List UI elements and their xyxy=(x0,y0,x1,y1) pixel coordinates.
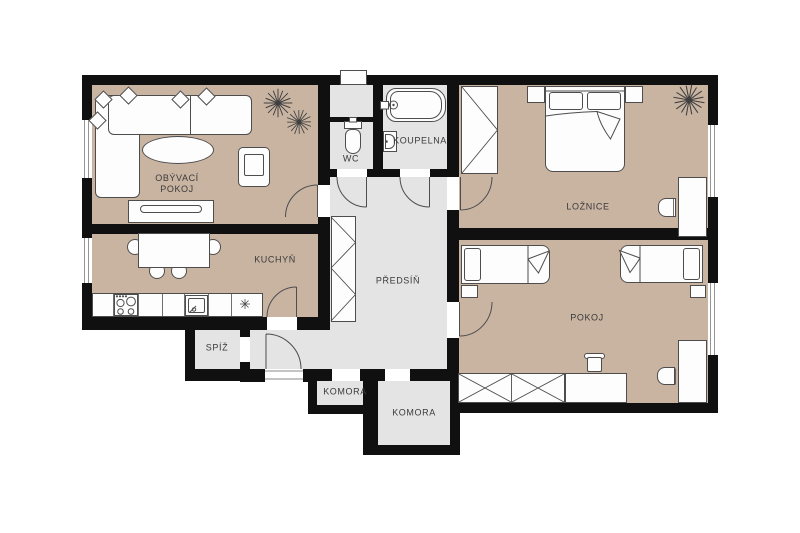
room-label-pantry: SPÍŽ xyxy=(206,343,228,354)
room-label-bathroom: KOUPELNA xyxy=(393,136,447,147)
toilet-tank xyxy=(344,121,362,129)
coffee-table xyxy=(142,136,214,164)
kitchen-sink-basin xyxy=(188,298,205,313)
door-opening-kids-room xyxy=(447,302,459,338)
room-label-storage-large: KOMORA xyxy=(392,408,436,419)
desk-chair-seat xyxy=(587,357,602,372)
room-label-wc: WC xyxy=(343,154,359,165)
door-opening-storage-small xyxy=(332,369,360,381)
door-opening-living-hall xyxy=(318,185,330,217)
bedroom-wardrobe xyxy=(461,86,498,174)
armchair-seat xyxy=(244,154,264,176)
desk xyxy=(678,177,707,237)
room-floor-shaft xyxy=(330,85,373,117)
window-kids-room xyxy=(708,283,718,355)
door-opening-pantry xyxy=(240,337,250,362)
dining-table xyxy=(138,233,210,268)
window-kitchen xyxy=(82,238,92,283)
pillow xyxy=(549,92,583,110)
bathtub-basin xyxy=(390,91,442,119)
stove xyxy=(114,294,138,316)
desk xyxy=(678,340,707,403)
nightstand xyxy=(461,285,478,298)
window-living-room xyxy=(82,120,92,178)
nightstand xyxy=(527,86,545,103)
door-opening-wc xyxy=(337,169,367,177)
door-opening-bedroom xyxy=(447,177,459,210)
nightstand xyxy=(690,285,706,298)
room-label-bedroom: LOŽNICE xyxy=(566,202,609,213)
room-label-kids-room: POKOJ xyxy=(570,313,604,324)
door-opening-bathroom xyxy=(400,169,430,177)
room-label-storage-small: KOMORA xyxy=(323,387,367,398)
room-floor-hall-entry xyxy=(250,330,334,369)
kids-wardrobe xyxy=(458,373,565,403)
pillow xyxy=(464,248,481,281)
door-opening-storage-large xyxy=(385,369,410,381)
toilet-bowl xyxy=(345,129,361,154)
window-bedroom xyxy=(708,125,718,197)
room-label-kitchen: KUCHYŇ xyxy=(254,255,296,266)
desk-chair xyxy=(657,367,675,385)
pillow xyxy=(587,92,621,110)
floor-plan: OBÝVACÍ POKOJ KUCHYŇ SPÍŽ PŘEDSÍŇ WC KOU… xyxy=(0,0,800,533)
pillow xyxy=(683,248,700,280)
desk xyxy=(565,373,627,403)
door-opening-entrance xyxy=(265,369,303,382)
tv-screen xyxy=(140,205,202,213)
hall-wardrobe xyxy=(331,216,356,322)
nightstand xyxy=(625,86,643,103)
vent-shaft xyxy=(340,70,367,85)
room-label-living-room: OBÝVACÍ POKOJ xyxy=(155,173,199,195)
room-label-hall: PŘEDSÍŇ xyxy=(376,276,420,287)
door-opening-kitchen xyxy=(267,317,297,330)
desk-chair xyxy=(658,198,676,217)
